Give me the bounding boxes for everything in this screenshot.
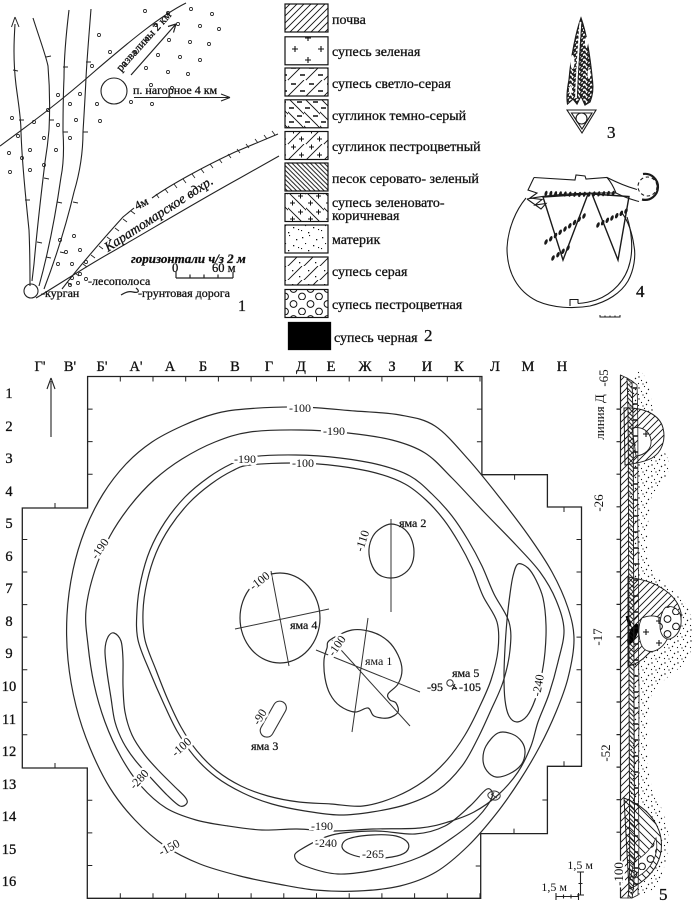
svg-text:11: 11 (2, 712, 16, 728)
svg-text:7: 7 (5, 581, 12, 597)
svg-text:К: К (454, 359, 464, 375)
svg-text:Б': Б' (97, 359, 108, 375)
svg-text:Д: Д (296, 359, 306, 375)
svg-text:Ж: Ж (359, 359, 372, 375)
svg-text:супесь черная: супесь черная (334, 331, 418, 346)
svg-text:песок серовато- зеленый: песок серовато- зеленый (332, 172, 479, 187)
svg-text:супесь зеленая: супесь зеленая (332, 45, 421, 60)
svg-text:материк: материк (332, 233, 380, 248)
svg-text:п. нагорное 4 км: п. нагорное 4 км (133, 83, 218, 97)
svg-text:-100: -100 (289, 401, 311, 415)
svg-text:-100: -100 (611, 862, 626, 886)
svg-text:-52: -52 (598, 744, 613, 761)
svg-text:14: 14 (2, 809, 17, 825)
svg-text:12: 12 (2, 744, 17, 760)
svg-text:Г: Г (265, 359, 273, 375)
svg-text:-65: -65 (596, 369, 611, 386)
svg-text:яма 2: яма 2 (399, 516, 426, 530)
svg-text:1,5 м: 1,5 м (541, 880, 567, 894)
svg-text:4: 4 (636, 282, 645, 301)
svg-text:4: 4 (5, 484, 13, 500)
svg-text:1,5 м: 1,5 м (567, 858, 593, 872)
svg-text:-100: -100 (247, 569, 273, 594)
svg-text:6: 6 (5, 549, 12, 565)
svg-text:яма 5: яма 5 (452, 666, 479, 680)
svg-text:2: 2 (424, 326, 433, 345)
svg-text:60 м: 60 м (212, 261, 236, 275)
svg-text:16: 16 (2, 874, 17, 890)
svg-text:В': В' (64, 359, 76, 375)
svg-text:супесь пестроцветная: супесь пестроцветная (332, 298, 463, 313)
svg-text:суглинок темно-серый: суглинок темно-серый (332, 109, 467, 124)
svg-text:-190: -190 (311, 819, 333, 833)
svg-text:-95: -95 (427, 680, 443, 694)
svg-text:суглинок пестроцветный: суглинок пестроцветный (332, 140, 481, 155)
svg-text:-90: -90 (249, 706, 269, 727)
svg-text:А: А (165, 359, 176, 375)
svg-text:Г': Г' (35, 359, 46, 375)
svg-text:супесь серая: супесь серая (332, 265, 408, 280)
svg-text:-240: -240 (529, 673, 547, 697)
svg-text:развалины 2 км: развалины 2 км (114, 9, 174, 74)
svg-text:-100: -100 (168, 734, 194, 759)
svg-text:яма 3: яма 3 (251, 739, 278, 753)
svg-text:Н: Н (557, 359, 568, 375)
svg-text:2: 2 (5, 419, 12, 435)
svg-text:И: И (422, 359, 433, 375)
svg-text:В: В (230, 359, 240, 375)
svg-text:Е: Е (327, 359, 336, 375)
svg-text:яма 1: яма 1 (365, 654, 392, 668)
svg-text:15: 15 (2, 842, 17, 858)
svg-text:13: 13 (2, 777, 17, 793)
svg-text:почва: почва (332, 13, 367, 28)
svg-text:1: 1 (238, 298, 246, 315)
svg-text:коричневая: коричневая (332, 209, 400, 224)
svg-text:-курган: -курган (41, 286, 80, 300)
svg-text:супесь светло-серая: супесь светло-серая (332, 77, 451, 92)
svg-text:4м: 4м (132, 194, 151, 213)
svg-text:яма 4: яма 4 (290, 618, 317, 632)
svg-text:-240: -240 (315, 836, 337, 850)
svg-text:1: 1 (5, 386, 12, 402)
svg-text:линия Д: линия Д (592, 394, 607, 440)
svg-text:-грунтовая дорога: -грунтовая дорога (138, 286, 231, 300)
svg-text:3: 3 (5, 451, 12, 467)
svg-text:0: 0 (172, 261, 178, 275)
svg-text:М: М (522, 359, 535, 375)
svg-text:-150: -150 (156, 836, 182, 859)
svg-text:-265: -265 (362, 847, 384, 861)
svg-text:-17: -17 (590, 628, 605, 646)
svg-text:-26: -26 (591, 494, 606, 512)
svg-text:-280: -280 (126, 766, 151, 792)
svg-text:10: 10 (2, 679, 17, 695)
svg-text:Б: Б (199, 359, 207, 375)
svg-text:5: 5 (5, 516, 12, 532)
svg-text:З: З (388, 359, 395, 375)
svg-text:-105: -105 (459, 680, 481, 694)
svg-text:Каратомарское вдхр.: Каратомарское вдхр. (101, 173, 216, 255)
svg-text:5: 5 (659, 885, 668, 904)
svg-text:А': А' (129, 359, 142, 375)
svg-text:9: 9 (5, 646, 12, 662)
svg-text:3: 3 (607, 123, 616, 142)
svg-text:8: 8 (5, 614, 12, 630)
svg-text:Л: Л (490, 359, 500, 375)
svg-text:-190: -190 (323, 424, 345, 438)
svg-text:-190: -190 (234, 452, 256, 466)
svg-text:-100: -100 (292, 456, 314, 470)
